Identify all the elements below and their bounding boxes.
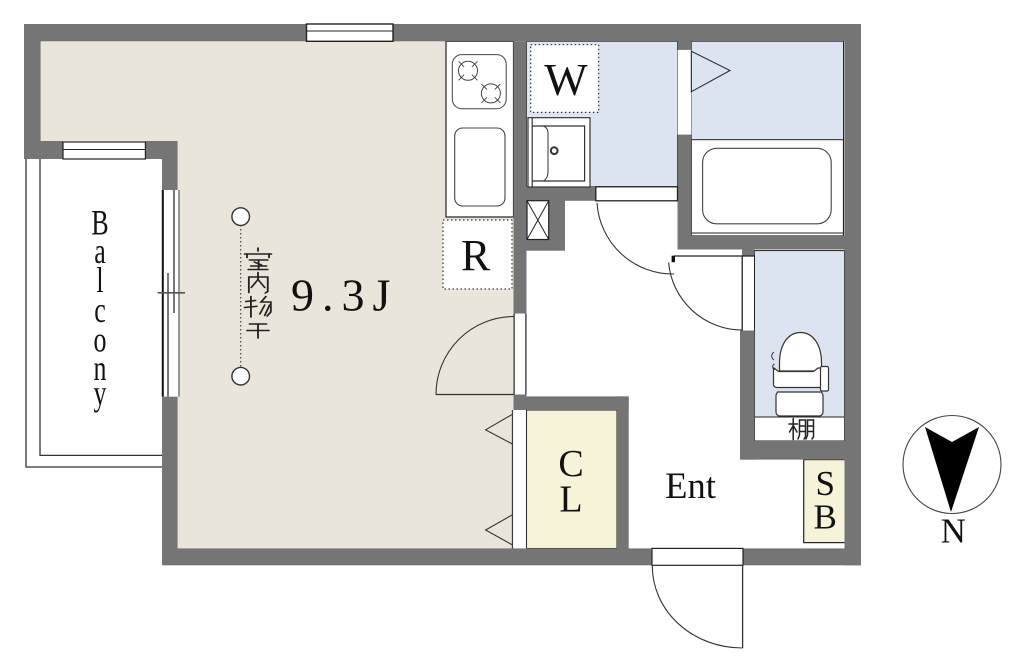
svg-text:N: N [941,511,966,550]
svg-text:Ent: Ent [665,465,716,506]
svg-text:L: L [559,479,582,521]
svg-text:W: W [544,54,588,105]
svg-text:B: B [814,498,837,537]
svg-text:y: y [94,373,107,413]
svg-text:9.3J: 9.3J [291,270,398,321]
svg-text:R: R [461,231,491,280]
